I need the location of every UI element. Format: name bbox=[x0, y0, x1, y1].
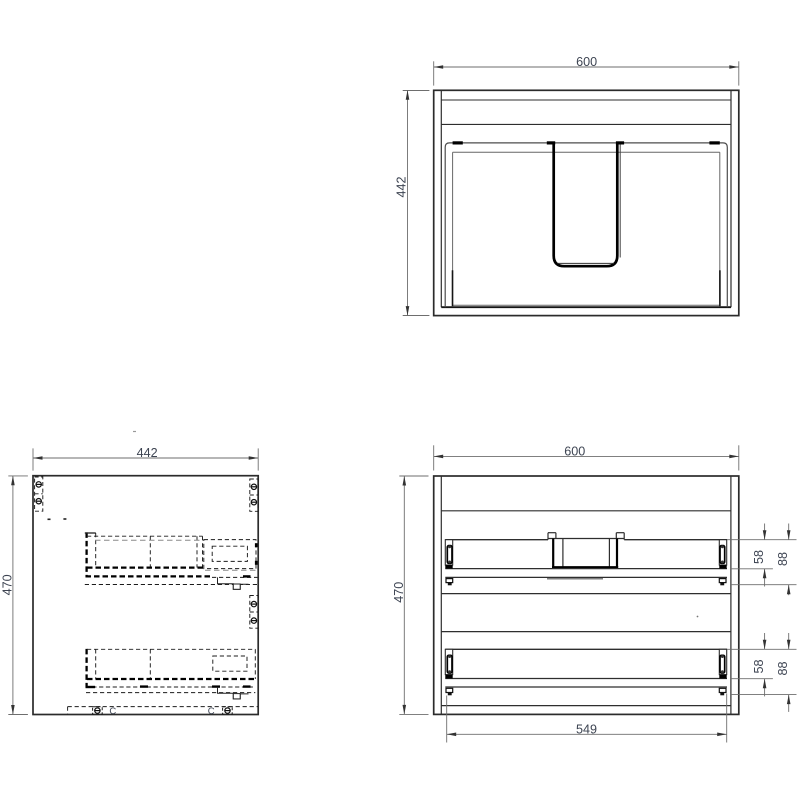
svg-text:88: 88 bbox=[776, 661, 790, 675]
svg-text:442: 442 bbox=[395, 176, 409, 197]
svg-text:470: 470 bbox=[392, 582, 406, 603]
svg-text:549: 549 bbox=[576, 722, 597, 736]
svg-text:442: 442 bbox=[137, 446, 158, 460]
svg-text:C: C bbox=[208, 706, 215, 717]
svg-text:470: 470 bbox=[1, 574, 15, 595]
svg-text:C: C bbox=[109, 706, 116, 717]
svg-text:58: 58 bbox=[752, 550, 766, 564]
svg-text:600: 600 bbox=[564, 444, 585, 458]
svg-text:88: 88 bbox=[776, 552, 790, 566]
svg-text:600: 600 bbox=[576, 55, 597, 69]
svg-text:58: 58 bbox=[752, 659, 766, 673]
